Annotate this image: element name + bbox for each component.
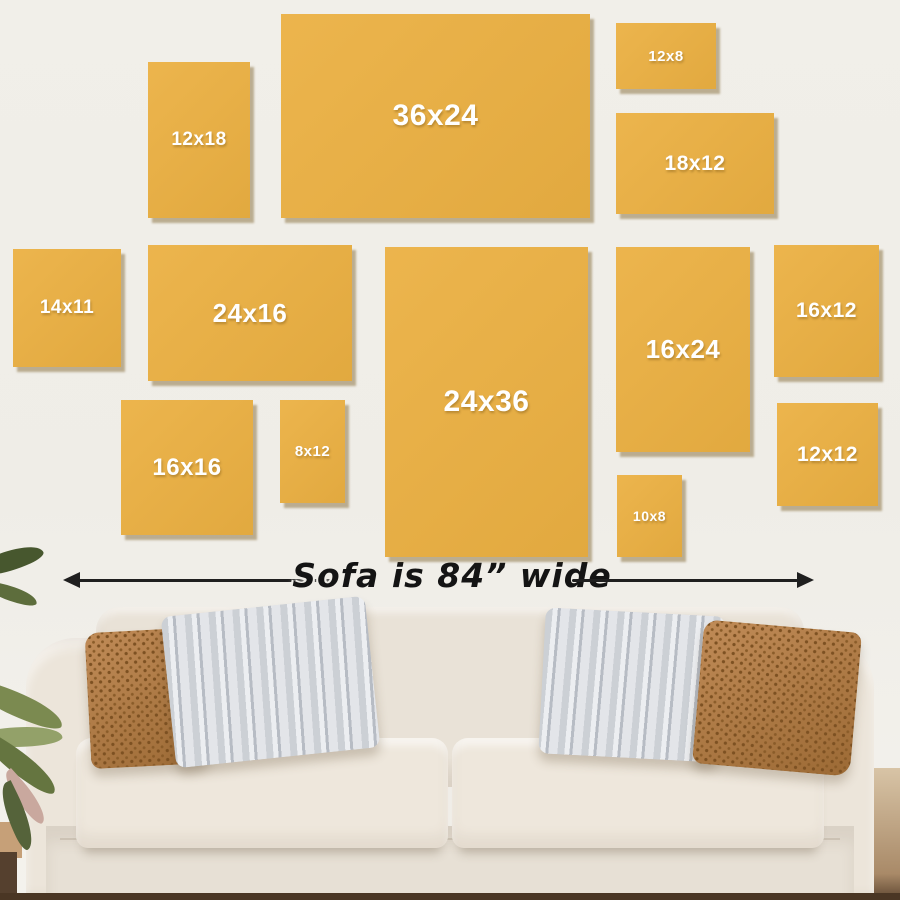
frame-size-label: 24x16: [213, 298, 288, 329]
frame-size-label: 12x8: [648, 48, 683, 65]
floor-wood-right: [872, 768, 900, 900]
frame-10x8: 10x8: [617, 475, 682, 557]
frame-size-label: 36x24: [393, 99, 479, 133]
pillow-striped-left: [161, 596, 381, 769]
frame-size-label: 16x16: [152, 454, 221, 482]
frame-size-label: 16x24: [646, 334, 721, 365]
frame-36x24: 36x24: [281, 14, 590, 218]
frame-8x12: 8x12: [280, 400, 345, 503]
frame-24x36: 24x36: [385, 247, 588, 557]
floor-shadow-bottom: [0, 893, 900, 900]
frame-16x16: 16x16: [121, 400, 253, 535]
frame-size-label: 24x36: [444, 385, 530, 419]
pillow-brown-right: [692, 619, 862, 776]
frame-14x11: 14x11: [13, 249, 121, 367]
frame-12x18: 12x18: [148, 62, 250, 218]
frame-size-label: 12x12: [797, 443, 858, 467]
frame-size-label: 18x12: [665, 152, 726, 176]
frame-18x12: 18x12: [616, 113, 774, 214]
frame-size-label: 10x8: [633, 508, 666, 524]
frame-size-label: 14x11: [40, 297, 94, 319]
size-guide-scene: 12x1836x2412x818x1214x1124x1624x3616x241…: [0, 0, 900, 900]
frame-16x24: 16x24: [616, 247, 750, 452]
frame-size-label: 12x18: [171, 129, 226, 151]
frame-12x12: 12x12: [777, 403, 878, 506]
frame-size-label: 16x12: [796, 299, 857, 323]
frame-16x12: 16x12: [774, 245, 879, 377]
frame-24x16: 24x16: [148, 245, 352, 381]
frame-size-label: 8x12: [295, 443, 330, 460]
frame-12x8: 12x8: [616, 23, 716, 89]
